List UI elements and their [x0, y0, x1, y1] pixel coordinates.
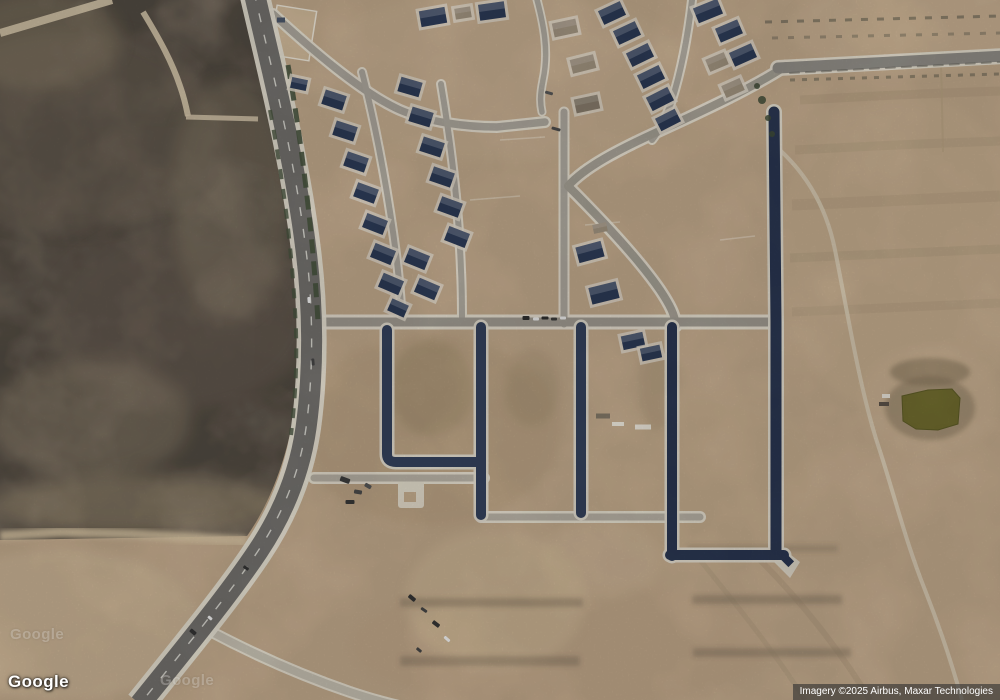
google-logo[interactable]: Google: [8, 672, 69, 692]
google-tile-watermark: Google: [160, 672, 214, 689]
satellite-imagery: [0, 0, 1000, 700]
attribution-text: Imagery ©2025 Airbus, Maxar Technologies: [800, 686, 993, 697]
attribution-bar: Imagery ©2025 Airbus, Maxar Technologies: [793, 684, 1000, 700]
grain-overlay: [0, 0, 1000, 700]
map-viewport[interactable]: Google Google Google Imagery ©2025 Airbu…: [0, 0, 1000, 700]
google-tile-watermark: Google: [10, 626, 64, 643]
